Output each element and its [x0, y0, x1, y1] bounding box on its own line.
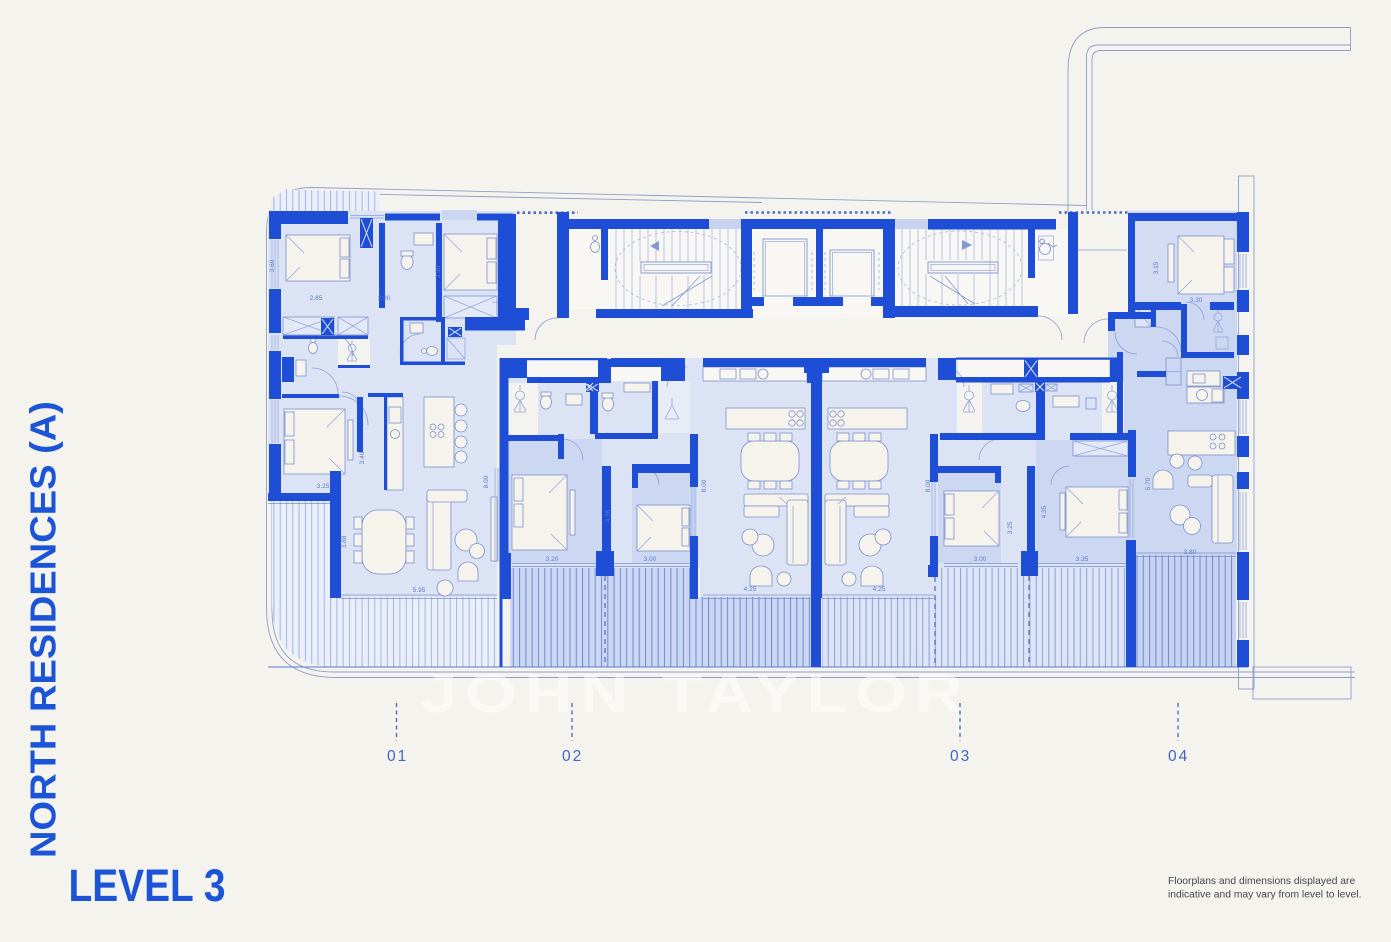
- svg-text:3.00: 3.00: [644, 556, 657, 563]
- svg-text:2.85: 2.85: [310, 295, 323, 302]
- svg-text:3.15: 3.15: [1153, 261, 1160, 274]
- svg-text:4.25: 4.25: [744, 586, 757, 593]
- svg-text:03: 03: [950, 748, 971, 765]
- svg-text:3.60: 3.60: [269, 259, 276, 272]
- svg-text:01: 01: [387, 748, 408, 765]
- svg-text:3.88: 3.88: [341, 535, 348, 548]
- svg-text:3.40: 3.40: [359, 451, 366, 464]
- svg-text:Floorplans and dimensions disp: Floorplans and dimensions displayed are: [1168, 876, 1355, 887]
- svg-text:3.25: 3.25: [1007, 521, 1014, 534]
- svg-text:3.20: 3.20: [546, 556, 559, 563]
- svg-text:3.30: 3.30: [1190, 297, 1203, 304]
- svg-text:8.00: 8.00: [701, 479, 708, 492]
- svg-text:02: 02: [562, 748, 583, 765]
- svg-text:3.35: 3.35: [1076, 556, 1089, 563]
- svg-text:8.00: 8.00: [925, 479, 932, 492]
- svg-text:8.00: 8.00: [483, 475, 490, 488]
- svg-text:3.30: 3.30: [435, 265, 442, 278]
- svg-text:NORTH RESIDENCES (A): NORTH RESIDENCES (A): [23, 401, 64, 858]
- svg-text:2.90: 2.90: [378, 295, 391, 302]
- svg-text:4.35: 4.35: [1041, 505, 1048, 518]
- svg-text:4.25: 4.25: [873, 586, 886, 593]
- svg-text:5.70: 5.70: [1145, 477, 1152, 490]
- svg-text:04: 04: [1168, 748, 1189, 765]
- svg-text:4.35: 4.35: [605, 509, 612, 522]
- svg-text:3.80: 3.80: [1184, 549, 1197, 556]
- svg-text:JOHN TAYLOR: JOHN TAYLOR: [420, 662, 970, 724]
- svg-text:3.00: 3.00: [974, 556, 987, 563]
- svg-text:LEVEL 3: LEVEL 3: [69, 860, 226, 911]
- svg-text:3.25: 3.25: [317, 483, 330, 490]
- svg-text:indicative and may vary from l: indicative and may vary from level to le…: [1168, 890, 1361, 901]
- svg-text:5.95: 5.95: [413, 587, 426, 594]
